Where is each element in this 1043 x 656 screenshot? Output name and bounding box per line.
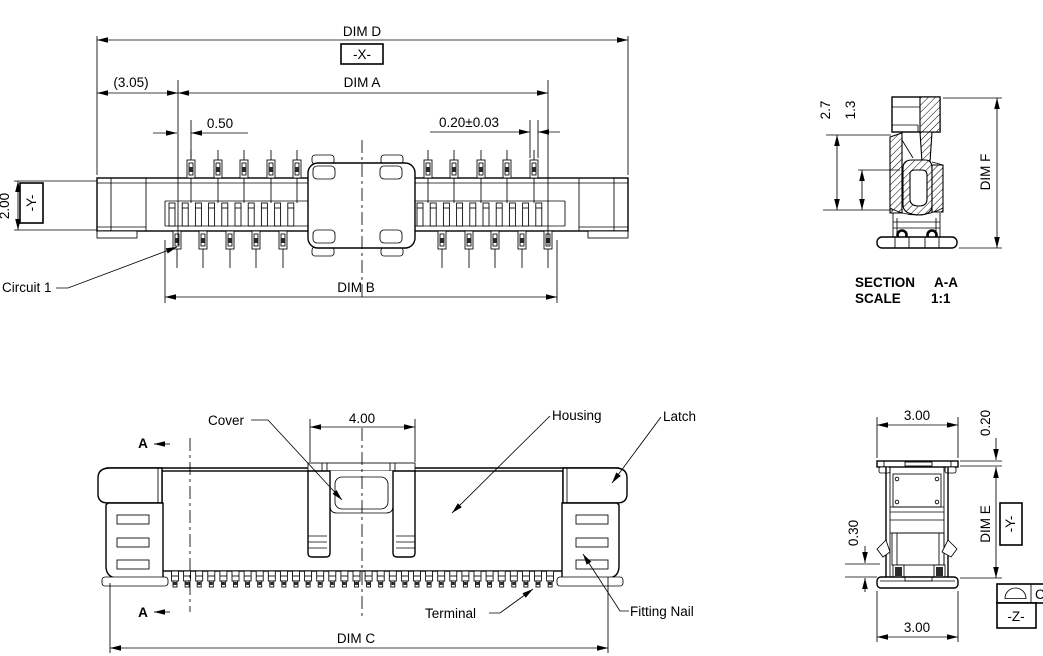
dim-c: DIM C xyxy=(110,577,608,653)
datum-y-side-view: -Y- xyxy=(1000,503,1022,545)
section-stem xyxy=(920,132,932,162)
dim-f: DIM F xyxy=(943,98,1002,248)
section-title-name: A-A xyxy=(934,275,958,290)
tooth xyxy=(261,203,267,226)
tooth xyxy=(509,203,515,226)
center-boss xyxy=(308,155,415,256)
section-right-wall xyxy=(932,165,943,212)
dim-side-width-bottom: 3.00 xyxy=(877,591,958,642)
tooth xyxy=(523,203,529,226)
solder-pad-right xyxy=(588,231,628,238)
tooth xyxy=(470,203,476,226)
cover xyxy=(308,463,415,557)
dim-e: DIM E xyxy=(960,467,1002,578)
section-marker-bottom-label: A xyxy=(138,605,148,620)
dim-side-width-top-label: 3.00 xyxy=(904,408,930,423)
dim-e-label: DIM E xyxy=(978,505,993,543)
dim-height-label: 2.00 xyxy=(0,193,12,219)
datum-z-box: -Z- xyxy=(997,603,1036,628)
section-title: SECTION A-A SCALE 1:1 xyxy=(855,275,958,306)
latch-label: Latch xyxy=(663,409,696,424)
top-view: DIM D -X- (3.05) DIM A 0.50 xyxy=(0,24,628,303)
section-marker-top-label: A xyxy=(138,436,148,451)
tooth xyxy=(430,203,436,226)
dim-020: 0.20 xyxy=(960,410,1002,466)
tooth xyxy=(457,203,463,226)
dim-c-label: DIM C xyxy=(337,631,375,646)
tooth xyxy=(169,203,175,226)
side-view: 3.00 0.20 DIM E -Y- 0.30 xyxy=(845,408,1043,642)
dim-030: 0.30 xyxy=(845,520,880,592)
section-contact xyxy=(903,160,932,215)
tooth xyxy=(209,203,215,226)
drawing-sheet: DIM D -X- (3.05) DIM A 0.50 xyxy=(0,0,1043,656)
tooth xyxy=(483,203,489,226)
dim-height: 2.00 xyxy=(0,181,97,230)
right-latch xyxy=(563,468,627,503)
dim-cover-width: 4.00 xyxy=(310,411,415,462)
drawing-canvas: DIM D -X- (3.05) DIM A 0.50 xyxy=(0,0,1043,656)
dim-305-label: (3.05) xyxy=(113,75,148,90)
section-view: 2.7 1.3 DIM F SECTION A-A SCALE 1:1 xyxy=(818,97,1002,306)
dim-13-label: 1.3 xyxy=(843,101,858,120)
dim-305: (3.05) xyxy=(97,75,178,93)
section-scale-label: SCALE xyxy=(855,291,901,306)
dim-cover-width-label: 4.00 xyxy=(349,411,375,426)
terminal-label: Terminal xyxy=(425,606,476,621)
tooth xyxy=(536,203,542,226)
section-left-wall xyxy=(890,133,902,213)
side-cavity xyxy=(893,474,941,507)
section-marker-top: A xyxy=(138,436,170,451)
tooth xyxy=(235,203,241,226)
dim-b: DIM B xyxy=(165,240,557,303)
solder-pad-left xyxy=(97,231,137,238)
circuit1-label: Circuit 1 xyxy=(2,280,52,295)
terminal-row xyxy=(172,571,554,587)
housing-label: Housing xyxy=(552,408,602,423)
dim-pin-width-label: 0.20±0.03 xyxy=(439,115,499,130)
terminal-callout: Terminal xyxy=(425,589,533,621)
dim-side-width-bottom-label: 3.00 xyxy=(904,620,930,635)
dim-side-width-top: 3.00 xyxy=(877,408,958,458)
tooth xyxy=(417,203,423,226)
dim-020-label: 0.20 xyxy=(978,410,993,436)
dim-030-label: 0.30 xyxy=(846,520,861,546)
left-fitting-nail xyxy=(102,503,168,586)
datum-y-top-view: -Y- xyxy=(20,183,43,223)
dim-pin-width: 0.20±0.03 xyxy=(430,115,560,158)
section-marker-bottom: A xyxy=(138,605,170,620)
dim-pitch-label: 0.50 xyxy=(207,116,233,131)
tooth xyxy=(443,203,449,226)
tooth xyxy=(222,203,228,226)
circuit1-leader xyxy=(56,247,177,288)
circuit1-callout: Circuit 1 xyxy=(2,247,177,295)
fitting-nail-label: Fitting Nail xyxy=(630,604,694,619)
section-title-label: SECTION xyxy=(855,275,915,290)
dim-pitch: 0.50 xyxy=(153,116,248,158)
datum-x: -X- xyxy=(341,44,383,64)
cover-label: Cover xyxy=(208,413,245,428)
dim-d-label: DIM D xyxy=(343,24,381,39)
dim-b-label: DIM B xyxy=(337,280,375,295)
tooth xyxy=(275,203,281,226)
section-flange xyxy=(877,237,957,248)
section-scale-value: 1:1 xyxy=(931,291,951,306)
side-hook-left xyxy=(877,540,890,557)
tooth xyxy=(288,203,294,226)
tooth xyxy=(496,203,502,226)
dim-a-label: DIM A xyxy=(344,75,381,90)
datum-target-box: C xyxy=(997,584,1043,603)
tooth xyxy=(195,203,201,226)
right-fitting-nail xyxy=(557,503,623,586)
datum-target-letter: C xyxy=(1035,587,1043,602)
dim-f-label: DIM F xyxy=(978,154,993,191)
datum-z-label: -Z- xyxy=(1007,609,1024,624)
tooth xyxy=(182,203,188,226)
left-latch xyxy=(98,468,162,503)
side-bottom-flange xyxy=(877,577,958,588)
datum-y-side-label: -Y- xyxy=(1003,516,1018,533)
datum-x-label: -X- xyxy=(353,47,371,62)
datum-y-label: -Y- xyxy=(24,195,39,212)
front-view: A A 4.00 Cover Housing Latch Terminal xyxy=(98,408,696,653)
tooth xyxy=(248,203,254,226)
dim-27-label: 2.7 xyxy=(818,101,833,120)
